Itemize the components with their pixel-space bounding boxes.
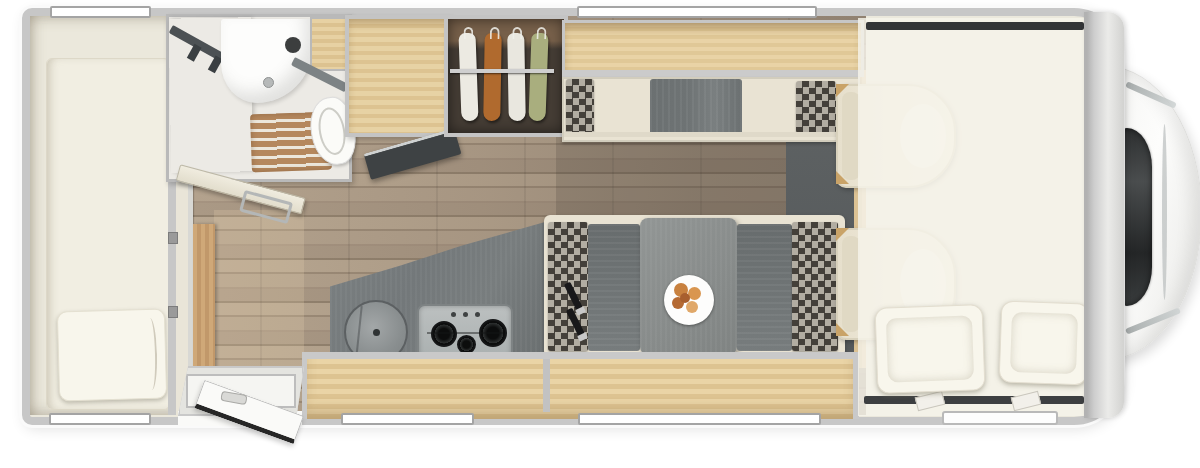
bathroom [166,14,352,182]
motorhome-floorplan [0,0,1200,468]
wardrobe [444,15,568,137]
bench-cushion-checkered [566,79,594,134]
hob-knob [475,312,480,317]
hood-edge-trim [1162,124,1167,300]
kitchen-sideboard [302,352,859,419]
kitchen-tall-cabinet [345,15,452,137]
window-strip [577,6,817,18]
bench-cushion-gray [650,79,742,136]
side-bench [562,77,860,142]
overcab-bed-translucent [858,18,1088,416]
hanging-clothes [458,33,478,122]
bench-front-edge [564,132,854,137]
food-item [686,301,698,313]
window-strip [49,413,151,425]
dinette-seat [588,224,640,351]
bed-latch-icon [1011,391,1042,411]
plate-with-food [664,275,714,325]
overcab-pillow [999,300,1090,385]
door-hinge-icon [168,306,178,318]
seat-backrest-checkered [792,222,838,351]
bed-frame-edge [864,396,1084,404]
overcab-pillow [875,304,986,394]
faucet-icon [263,77,274,88]
hanging-clothes [483,33,502,121]
bed-frame-edge [866,22,1084,30]
window-strip [578,413,821,425]
locker-front-edge [562,70,864,77]
hob-knob [451,312,456,317]
overhead-locker [562,20,864,74]
seat-backrest-checkered [548,222,588,351]
bench-cushion-checkered [796,81,836,133]
hob-burner [431,321,457,347]
window-strip [50,6,151,18]
hanging-clothes [528,33,548,122]
sideboard-divider [543,359,550,412]
bed-handle [942,411,1058,425]
floor-highlight [214,210,304,376]
basin-drain [285,37,301,53]
seat-belt [564,282,584,314]
hanging-clothes [507,33,526,121]
door-hinge-icon [168,232,178,244]
hob-knob [463,312,468,317]
food-item [680,293,690,303]
dinette-table [640,218,737,355]
hob-burner [479,319,507,347]
front-bulkhead-wall [1084,12,1124,418]
wardrobe-rail [450,69,554,73]
bed-latch-icon [915,391,946,411]
window-strip [341,413,474,425]
dinette [544,215,845,357]
dinette-seat [737,224,792,351]
bed-pillow [57,309,167,402]
